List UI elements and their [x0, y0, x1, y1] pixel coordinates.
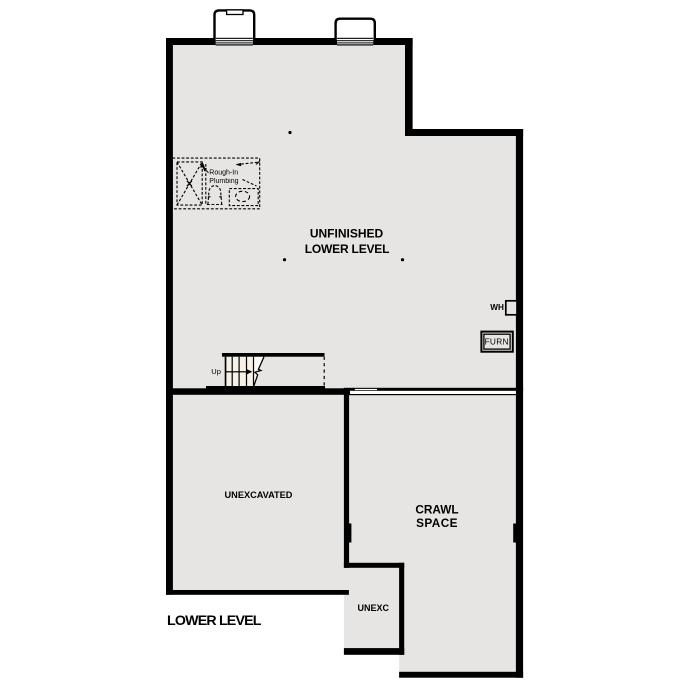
svg-text:FURN: FURN — [485, 336, 509, 346]
svg-text:LOWER LEVEL: LOWER LEVEL — [305, 242, 389, 256]
svg-text:UNEXCAVATED: UNEXCAVATED — [225, 490, 293, 500]
svg-text:SPACE: SPACE — [416, 516, 458, 530]
svg-text:LOWER LEVEL: LOWER LEVEL — [167, 613, 262, 629]
svg-text:UNFINISHED: UNFINISHED — [310, 226, 384, 240]
svg-text:Rough-In: Rough-In — [209, 169, 238, 176]
svg-text:Up: Up — [211, 367, 221, 376]
svg-text:UNEXC: UNEXC — [358, 603, 390, 613]
svg-text:WH: WH — [490, 303, 504, 312]
svg-text:Plumbing: Plumbing — [209, 178, 238, 185]
svg-text:CRAWL: CRAWL — [415, 502, 458, 516]
